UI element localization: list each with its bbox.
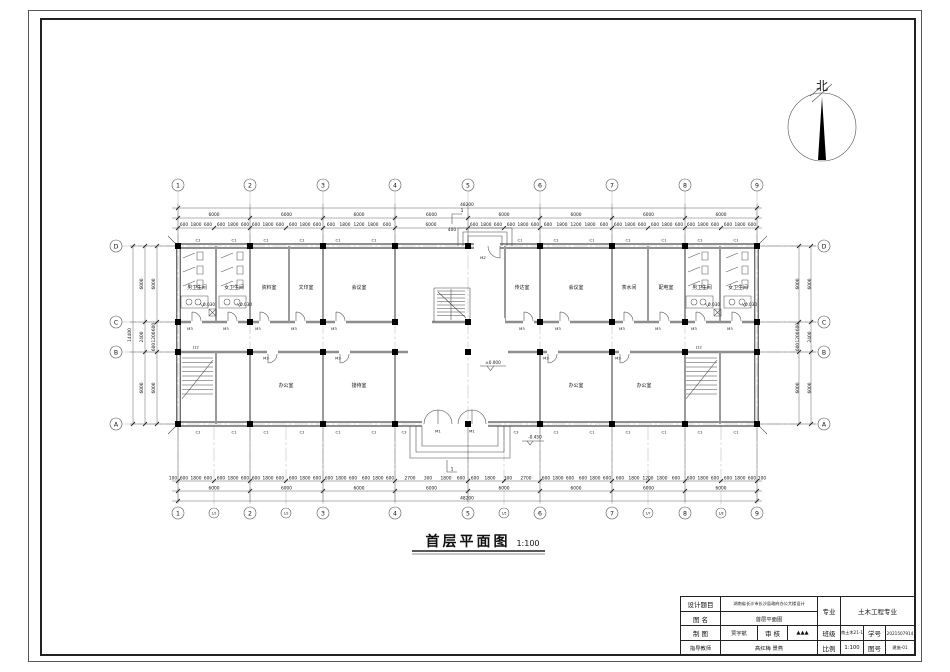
- v-dim: 600: [795, 323, 801, 331]
- bay-dim: 6000: [716, 486, 727, 492]
- detail-dim: 600: [313, 476, 321, 482]
- v-dim: 6000: [807, 382, 813, 393]
- door-label: M3: [335, 356, 341, 361]
- door-label: M3: [255, 326, 261, 331]
- grid-subaxis-label: 1/8: [719, 512, 724, 516]
- grid-subaxis-label: 1/5: [502, 512, 507, 516]
- drawing-sheet: 123456789 123456789 1/11/21/51/71/8 DCBA…: [0, 0, 950, 672]
- grid-axis-label: 3: [321, 511, 325, 518]
- room-label: 女卫生间: [224, 284, 244, 291]
- detail-dim: 1800: [625, 222, 636, 228]
- window-label: C1: [553, 430, 559, 435]
- room-label: 配电室: [659, 284, 674, 291]
- drawing-name-value: 首层平面图: [721, 612, 818, 626]
- drafter-value: 贾宇航: [721, 626, 758, 641]
- detail-dim: 600: [724, 222, 732, 228]
- detail-dim: 1800: [518, 222, 529, 228]
- room-label: 会议室: [569, 284, 584, 291]
- bay-dim: 6000: [426, 212, 437, 218]
- window-label: C1: [263, 238, 269, 243]
- detail-dim: 600: [252, 222, 260, 228]
- v-dim: 2400: [807, 331, 813, 342]
- north-label: 北: [816, 79, 828, 93]
- grid-subaxis-label: 1/7: [646, 512, 651, 516]
- level-toilet: 0.030: [745, 302, 757, 307]
- grid-axis-label: 9: [755, 511, 759, 518]
- window-label: C1: [625, 430, 631, 435]
- floor-plan-canvas: 123456789 123456789 1/11/21/51/71/8 DCBA…: [0, 0, 950, 672]
- window-label: C1: [517, 238, 523, 243]
- detail-dim: 1800: [698, 222, 709, 228]
- detail-dim: 600: [276, 222, 284, 228]
- toilet-fixtures: [181, 252, 751, 316]
- detail-dim: 600: [325, 476, 333, 482]
- student-id-value: 2021507914: [886, 626, 915, 641]
- detail-dim: 600: [711, 222, 719, 228]
- section-mark: 1: [451, 467, 454, 473]
- detail-dim: 6000: [426, 222, 437, 228]
- door-label: M3: [331, 326, 337, 331]
- detail-dim: 1800: [657, 476, 668, 482]
- detail-dim: 1800: [481, 222, 492, 228]
- v-dim: 600: [795, 343, 801, 351]
- design-title-label: 设计题目: [681, 597, 721, 612]
- sheet-value: 建施-01: [886, 641, 915, 655]
- room-label: 资料室: [262, 284, 277, 291]
- detail-dim: 600: [687, 222, 695, 228]
- door-label: M1: [435, 429, 441, 434]
- detail-dim: 600: [470, 222, 478, 228]
- window-label: C1: [625, 238, 631, 243]
- detail-dim: 1800: [300, 476, 311, 482]
- plan-title-text: 首层平面图: [426, 533, 511, 550]
- reviewer-value: ▲▲▲: [788, 626, 818, 641]
- detail-dim: 600: [276, 476, 284, 482]
- bay-dim: 6000: [354, 486, 365, 492]
- sheet-label: 图号: [864, 641, 886, 655]
- window-label: C1: [697, 238, 703, 243]
- detail-dim: 2700: [405, 476, 416, 482]
- grid-row-label: C: [114, 320, 118, 327]
- v-dim: 6000: [151, 382, 157, 393]
- detail-dim: 1800: [336, 476, 347, 482]
- door-label: M3: [543, 356, 549, 361]
- detail-dim: 1800: [368, 222, 379, 228]
- door-label: M3: [223, 326, 229, 331]
- door-label: M1: [469, 429, 475, 434]
- room-label: 男卫生间: [187, 284, 207, 291]
- room-labels: 男卫生间女卫生间资料室文印室会议室传达室会议室茶水间配电室男卫生间女卫生间 办公…: [187, 284, 748, 389]
- detail-dim: 1800: [590, 476, 601, 482]
- v-dim: 6000: [139, 278, 145, 289]
- door-label: M3: [615, 356, 621, 361]
- grid-axis-label: 6: [538, 511, 542, 518]
- room-label: 茶水间: [622, 284, 637, 291]
- door-label: M3: [187, 326, 193, 331]
- detail-dim: 1800: [191, 476, 202, 482]
- bay-dim: 6000: [426, 486, 437, 492]
- door-label: M3: [263, 356, 269, 361]
- detail-dim: 1800: [735, 222, 746, 228]
- window-label: C1: [195, 430, 201, 435]
- scale-label: 比例: [818, 641, 841, 655]
- detail-dim: 1800: [629, 476, 640, 482]
- entrance-porches: [410, 214, 544, 472]
- detail-dim: 300: [424, 476, 432, 482]
- detail-dim: 1800: [228, 476, 239, 482]
- door-label: M3: [291, 326, 297, 331]
- detail-dim: 600: [313, 222, 321, 228]
- detail-dim: 1800: [340, 222, 351, 228]
- grid-row-label: A: [822, 422, 827, 429]
- room-label: 办公室: [637, 382, 652, 389]
- detail-dim: 600: [241, 476, 249, 482]
- v-dim: 6000: [795, 382, 801, 393]
- drawing-name-label: 图 名: [681, 612, 721, 626]
- level-ground: ±0.000: [485, 360, 501, 365]
- window-label: C1: [299, 238, 305, 243]
- grid-axis-label: 2: [248, 511, 252, 518]
- detail-dim: 600: [289, 476, 297, 482]
- window-label: C3: [513, 430, 519, 435]
- detail-dim: 1800: [300, 222, 311, 228]
- v-dim: 600: [151, 343, 157, 351]
- detail-dim: 600: [180, 222, 188, 228]
- door-label: M3: [655, 326, 661, 331]
- end-dim: 100: [758, 476, 766, 482]
- detail-dim: 600: [383, 222, 391, 228]
- detail-dim: 600: [603, 476, 611, 482]
- door-label: M3: [691, 326, 697, 331]
- detail-dim: 600: [672, 476, 680, 482]
- level-toilet: 0.030: [708, 302, 720, 307]
- detail-dim: 600: [544, 222, 552, 228]
- detail-dim: 600: [327, 222, 335, 228]
- detail-dim: 600: [252, 476, 260, 482]
- bay-dim: 6000: [571, 212, 582, 218]
- level-toilet: 0.030: [240, 302, 252, 307]
- room-label: 办公室: [279, 382, 294, 389]
- detail-dim: 600: [638, 222, 646, 228]
- v-dim: 6000: [139, 382, 145, 393]
- bay-dim: 6000: [354, 212, 365, 218]
- detail-dim: 600: [494, 222, 502, 228]
- window-label: C1: [589, 238, 595, 243]
- total-width-dim: 48200: [460, 496, 474, 502]
- total-height-dim: 14400: [127, 328, 133, 342]
- grid-row-label: A: [114, 422, 119, 429]
- v-dim: 600: [151, 323, 157, 331]
- detail-dim: 600: [748, 476, 756, 482]
- stair-label: J12: [192, 345, 200, 350]
- detail-dim: 1800: [485, 476, 496, 482]
- detail-dim: 1800: [263, 476, 274, 482]
- grid-row-label: B: [822, 350, 826, 357]
- total-width-dim: 48200: [460, 202, 474, 208]
- entry-dim: 400: [448, 227, 456, 233]
- advisor-value: 高红梅 景燕: [721, 641, 818, 655]
- room-label: 接待室: [352, 382, 367, 389]
- window-label: C1: [589, 430, 595, 435]
- v-dim: 6000: [151, 278, 157, 289]
- room-label: 办公室: [569, 382, 584, 389]
- bay-dim: 6000: [281, 212, 292, 218]
- detail-dim: 600: [542, 476, 550, 482]
- corridor-walls: [178, 322, 757, 352]
- grid-row-label: D: [114, 244, 119, 251]
- window-label: C3: [401, 430, 407, 435]
- detail-dim: 600: [471, 476, 479, 482]
- class-value: 中南土木21-1班: [841, 626, 864, 641]
- room-label: 传达室: [515, 284, 530, 291]
- detail-dim: 600: [507, 222, 515, 228]
- north-arrow: 北: [788, 79, 856, 161]
- detail-dim: 600: [566, 476, 574, 482]
- bay-dim: 6000: [571, 486, 582, 492]
- design-title-value: 湖南省长沙市长沙县政府办公大楼设计: [721, 597, 818, 612]
- detail-dim: 600: [217, 222, 225, 228]
- detail-dim: 600: [711, 476, 719, 482]
- bay-dim: 6000: [209, 486, 220, 492]
- room-label: 女卫生间: [728, 284, 748, 291]
- detail-dim: 1200: [571, 222, 582, 228]
- detail-dim: 600: [457, 476, 465, 482]
- detail-dim: 1200: [643, 476, 654, 482]
- bay-dim: 6000: [499, 212, 510, 218]
- doors: [192, 246, 741, 424]
- stair-label: J12: [695, 345, 703, 350]
- window-label: C1: [195, 238, 201, 243]
- bay-dim: 6000: [643, 212, 654, 218]
- window-label: C1: [661, 430, 667, 435]
- room-label: 文印室: [299, 284, 314, 291]
- detail-dim: 600: [204, 476, 212, 482]
- bay-dim: 6000: [643, 486, 654, 492]
- detail-dim: 600: [579, 476, 587, 482]
- grid-row-label: D: [822, 244, 827, 251]
- student-id-label: 学号: [864, 626, 886, 641]
- drafter-label: 制 图: [681, 626, 721, 641]
- room-label: 男卫生间: [692, 284, 712, 291]
- central-stair: [437, 289, 466, 320]
- grid-axis-label: 3: [321, 183, 325, 190]
- window-label: C1: [335, 238, 341, 243]
- window-label: C1: [733, 430, 739, 435]
- detail-dim: 600: [217, 476, 225, 482]
- v-dim: 6000: [807, 278, 813, 289]
- exterior-walls: [168, 236, 767, 434]
- grid-subaxis-label: 1/2: [284, 512, 289, 516]
- grid-axis-label: 1: [176, 183, 180, 190]
- grid-axis-label: 1: [176, 511, 180, 518]
- door-gaps: [191, 243, 742, 427]
- grid-axis-label: 6: [538, 183, 542, 190]
- window-label: C1: [263, 430, 269, 435]
- detail-dim: 1800: [191, 222, 202, 228]
- v-dim: 1200: [151, 331, 157, 342]
- level-toilet: 0.030: [203, 302, 215, 307]
- bay-dim: 6000: [499, 486, 510, 492]
- v-dim: 6000: [795, 278, 801, 289]
- v-dim: 2400: [139, 331, 145, 342]
- detail-dim: 1800: [557, 222, 568, 228]
- door-label: M3: [619, 326, 625, 331]
- detail-dim: 600: [724, 476, 732, 482]
- window-label: C1: [697, 430, 703, 435]
- grid-subaxis-label: 1/1: [212, 512, 217, 516]
- grid-axis-label: 7: [610, 183, 614, 190]
- grid-axis-label: 8: [683, 511, 687, 518]
- bay-dim: 6000: [281, 486, 292, 492]
- north-needle: [818, 97, 826, 160]
- window-label: C1: [335, 430, 341, 435]
- detail-dim: 300: [504, 476, 512, 482]
- grid-axis-label: 4: [393, 183, 397, 190]
- columns: [175, 243, 760, 427]
- detail-dim: 600: [289, 222, 297, 228]
- plan-title: 首层平面图 1:100: [412, 533, 545, 554]
- door-label: M2: [480, 255, 486, 260]
- detail-dim: 600: [180, 476, 188, 482]
- door-label: M3: [519, 326, 525, 331]
- detail-dim: 1800: [553, 476, 564, 482]
- detail-dim: 600: [687, 476, 695, 482]
- advisor-label: 指导教师: [681, 641, 721, 655]
- detail-dim: 1800: [228, 222, 239, 228]
- detail-dim: 600: [614, 222, 622, 228]
- window-label: C1: [231, 238, 237, 243]
- detail-dim: 1800: [662, 222, 673, 228]
- door-label: M3: [727, 326, 733, 331]
- reviewer-label: 审 核: [758, 626, 788, 641]
- detail-dim: 1800: [735, 476, 746, 482]
- grid-axis-label: 8: [683, 183, 687, 190]
- detail-dim: 600: [675, 222, 683, 228]
- detail-dim: 600: [531, 222, 539, 228]
- bay-dim: 6000: [716, 212, 727, 218]
- plan-title-scale: 1:100: [516, 539, 539, 548]
- title-block: 设计题目 湖南省长沙市长沙县政府办公大楼设计 专业 土木工程专业 图 名 首层平…: [680, 596, 915, 655]
- detail-dim: 1800: [698, 476, 709, 482]
- room-label: 会议室: [352, 284, 367, 291]
- opening-labels: C1C1C1C1C1C1C1C1C1C1C1C1C1 C1C1C1C1C1C1C…: [187, 238, 739, 435]
- level-porch: -0.450: [528, 435, 542, 440]
- v-dim: 1200: [795, 331, 801, 342]
- detail-dim: 2700: [521, 476, 532, 482]
- detail-dim: 600: [362, 476, 370, 482]
- grid-axis-label: 7: [610, 511, 614, 518]
- grid-axis-label: 5: [466, 183, 470, 190]
- grid-axis-label: 4: [393, 511, 397, 518]
- detail-dim: 600: [616, 476, 624, 482]
- window-label: C1: [231, 430, 237, 435]
- section-mark: 1: [461, 208, 464, 214]
- detail-dim: 600: [386, 476, 394, 482]
- detail-dim: 1200: [354, 222, 365, 228]
- detail-dim: 600: [748, 222, 756, 228]
- door-label: M3: [555, 326, 561, 331]
- window-label: C1: [371, 238, 377, 243]
- detail-dim: 600: [349, 476, 357, 482]
- window-label: C1: [661, 238, 667, 243]
- scale-value: 1:100: [841, 641, 864, 655]
- detail-dim: 1800: [441, 476, 452, 482]
- major-value: 土木工程专业: [841, 597, 915, 626]
- detail-dim: 600: [600, 222, 608, 228]
- detail-dim: 1800: [585, 222, 596, 228]
- grid-axis-label: 5: [466, 511, 470, 518]
- bay-dim: 6000: [209, 212, 220, 218]
- detail-dim: 600: [651, 222, 659, 228]
- window-label: C1: [553, 238, 559, 243]
- detail-dim: 600: [204, 222, 212, 228]
- detail-dim: 600: [241, 222, 249, 228]
- window-label: C1: [299, 430, 305, 435]
- window-label: C1: [733, 238, 739, 243]
- window-label: C1: [371, 430, 377, 435]
- grid-row-label: B: [114, 350, 118, 357]
- class-label: 班级: [818, 626, 841, 641]
- end-dim: 100: [169, 476, 177, 482]
- grid-axis-label: 9: [755, 183, 759, 190]
- grid-axis-label: 2: [248, 183, 252, 190]
- detail-dim: 1800: [263, 222, 274, 228]
- major-label: 专业: [818, 597, 841, 626]
- grid-row-label: C: [822, 320, 826, 327]
- detail-dim: 1800: [373, 476, 384, 482]
